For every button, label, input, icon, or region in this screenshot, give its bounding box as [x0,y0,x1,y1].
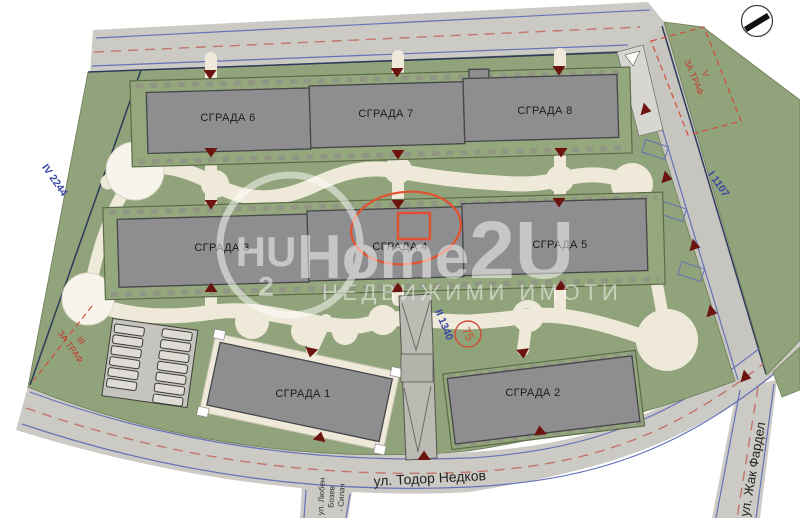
site-plan-image: СГРАДА 1 СГРАДА 2 СГРАДА 3 СГРАДА 4 СГРА… [0,0,800,518]
plaza-circle [332,319,358,345]
pad-corner [213,329,226,340]
pad-corner [197,406,210,417]
pad-corner [374,444,387,455]
street-lyuben-line3: - Силач [336,483,346,512]
parking-lot [102,318,198,407]
plaza-circle [636,309,698,371]
site-plan-svg: СГРАДА 1 СГРАДА 2 СГРАДА 3 СГРАДА 4 СГРА… [0,0,800,518]
watermark-logo-letters: HU [236,228,297,275]
building-2-label: СГРАДА 2 [505,387,560,399]
ramp [399,294,437,460]
building-8-label: СГРАДА 8 [517,105,572,117]
building-6-label: СГРАДА 6 [200,112,255,124]
building-1-label: СГРАДА 1 [275,388,330,400]
watermark-subtitle: НЕДВИЖИМИ ИМОТИ [322,280,622,305]
watermark-logo-digit: 2 [258,271,274,302]
street-lyuben-line2: Бозев [326,486,336,508]
ramp-landing [401,354,433,382]
north-arrow-compass-icon [742,6,773,37]
plaza-circle [291,316,321,346]
building-7-label: СГРАДА 7 [358,108,413,120]
